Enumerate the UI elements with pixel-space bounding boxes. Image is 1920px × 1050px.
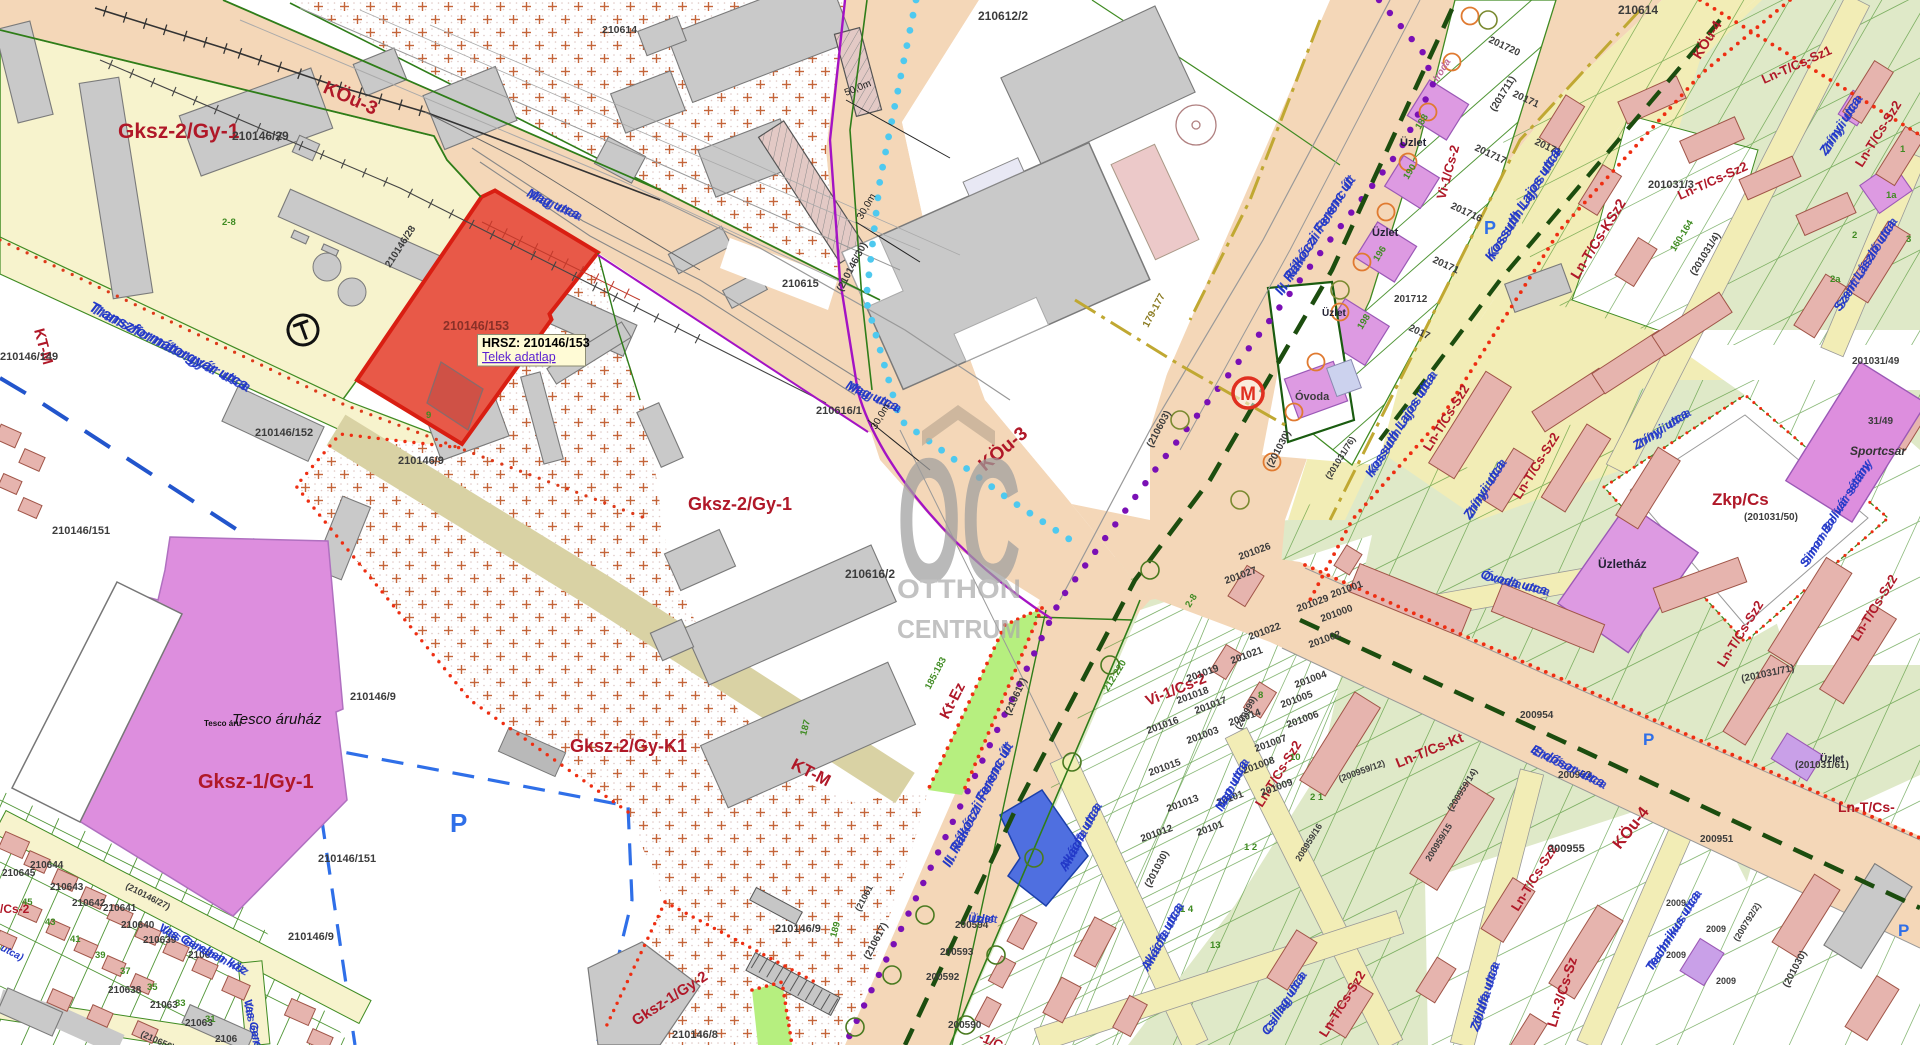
svg-text:210146/9: 210146/9 xyxy=(350,691,396,703)
svg-text:1a: 1a xyxy=(1886,190,1897,201)
svg-text:210616/2: 210616/2 xyxy=(845,567,895,581)
svg-text:Tesco áruház: Tesco áruház xyxy=(232,711,322,728)
svg-text:13: 13 xyxy=(1210,940,1221,951)
svg-text:HRSZ: 210146/153: HRSZ: 210146/153 xyxy=(482,336,590,350)
svg-text:210616/1: 210616/1 xyxy=(816,405,862,417)
svg-text:210614: 210614 xyxy=(1618,3,1658,17)
svg-text:37: 37 xyxy=(120,966,131,977)
svg-text:200590: 200590 xyxy=(948,1020,982,1031)
svg-text:Üzlet: Üzlet xyxy=(1400,136,1427,149)
svg-text:10: 10 xyxy=(1290,752,1301,763)
svg-text:1 2: 1 2 xyxy=(1244,842,1257,853)
svg-text:3: 3 xyxy=(1906,234,1911,245)
svg-text:200955: 200955 xyxy=(1548,843,1585,855)
svg-text:210615: 210615 xyxy=(782,278,819,290)
svg-text:210146/9: 210146/9 xyxy=(775,923,821,935)
svg-text:21063: 21063 xyxy=(150,1000,178,1011)
svg-text:Ln-T/Cs-: Ln-T/Cs- xyxy=(1838,799,1895,815)
svg-text:41: 41 xyxy=(70,934,81,945)
svg-text:200592: 200592 xyxy=(926,972,960,983)
svg-text:210146/151: 210146/151 xyxy=(318,853,376,865)
svg-text:210638: 210638 xyxy=(108,985,142,996)
svg-text:31/49: 31/49 xyxy=(1868,416,1893,427)
svg-text:2009: 2009 xyxy=(1706,924,1726,934)
svg-text:2-8: 2-8 xyxy=(222,217,236,228)
svg-text:39: 39 xyxy=(95,950,106,961)
svg-text:210642: 210642 xyxy=(72,898,106,909)
svg-text:201031/49: 201031/49 xyxy=(1852,356,1900,367)
svg-text:CENTRUM: CENTRUM xyxy=(897,614,1021,644)
svg-text:210612/2: 210612/2 xyxy=(978,9,1028,23)
svg-text:Üzlet: Üzlet xyxy=(1322,306,1347,319)
svg-text:201712: 201712 xyxy=(1394,294,1428,305)
svg-text:210146/149: 210146/149 xyxy=(0,351,58,363)
svg-text:201031/3: 201031/3 xyxy=(1648,179,1694,191)
svg-text:210641: 210641 xyxy=(103,903,137,914)
svg-text:210146/152: 210146/152 xyxy=(255,427,313,439)
svg-text:Óvoda: Óvoda xyxy=(1295,390,1330,403)
svg-text:210643: 210643 xyxy=(50,882,84,893)
svg-text:200951: 200951 xyxy=(1700,834,1734,845)
svg-text:8: 8 xyxy=(1258,690,1263,701)
svg-text:2: 2 xyxy=(1852,230,1857,241)
svg-text:M: M xyxy=(1240,384,1256,405)
svg-text:31: 31 xyxy=(205,1014,216,1025)
svg-text:2a: 2a xyxy=(1830,274,1841,285)
svg-text:2009: 2009 xyxy=(1716,976,1736,986)
svg-text:210644: 210644 xyxy=(30,860,64,871)
svg-text:Üzlet: Üzlet xyxy=(1372,226,1399,239)
svg-text:200954: 200954 xyxy=(1520,710,1554,721)
svg-text:Gksz-1/Gy-1: Gksz-1/Gy-1 xyxy=(198,771,314,793)
svg-text:210146/9: 210146/9 xyxy=(288,931,334,943)
svg-text:210614: 210614 xyxy=(602,24,637,36)
svg-text:Gksz-2/Gy-1: Gksz-2/Gy-1 xyxy=(118,120,240,143)
svg-text:Sportcsar: Sportcsar xyxy=(1850,444,1907,458)
svg-text:200593: 200593 xyxy=(940,947,974,958)
svg-text:P: P xyxy=(1643,730,1654,749)
svg-text:33: 33 xyxy=(175,998,186,1009)
svg-text:210146/153: 210146/153 xyxy=(443,319,509,333)
svg-text:Zkp/Cs: Zkp/Cs xyxy=(1712,490,1769,509)
svg-text:Telek adatlap: Telek adatlap xyxy=(482,350,556,364)
svg-text:Gksz-2/Gy-1: Gksz-2/Gy-1 xyxy=(688,494,792,514)
svg-text:210640: 210640 xyxy=(121,920,155,931)
svg-text:210146/8: 210146/8 xyxy=(672,1029,718,1041)
svg-text:Üzlet: Üzlet xyxy=(1820,752,1845,765)
svg-text:45: 45 xyxy=(22,897,33,908)
svg-text:2106: 2106 xyxy=(215,1034,238,1045)
svg-text:43: 43 xyxy=(45,917,56,928)
svg-text:(201031/50): (201031/50) xyxy=(1744,512,1798,523)
svg-text:Gksz-2/Gy-K1: Gksz-2/Gy-K1 xyxy=(570,736,687,756)
svg-text:OTTHON: OTTHON xyxy=(897,574,1021,604)
svg-text:Üzlet: Üzlet xyxy=(971,913,999,926)
svg-text:2 1: 2 1 xyxy=(1310,792,1324,803)
svg-text:210146/151: 210146/151 xyxy=(52,525,110,537)
svg-text:P: P xyxy=(450,808,467,838)
svg-text:210146/29: 210146/29 xyxy=(232,129,289,143)
svg-text:1: 1 xyxy=(1900,144,1906,155)
svg-text:Üzletház: Üzletház xyxy=(1598,556,1647,571)
svg-text:35: 35 xyxy=(147,982,158,993)
svg-text:210146/9: 210146/9 xyxy=(398,455,444,467)
svg-text:9: 9 xyxy=(426,410,431,421)
svg-text:P: P xyxy=(1898,921,1909,940)
